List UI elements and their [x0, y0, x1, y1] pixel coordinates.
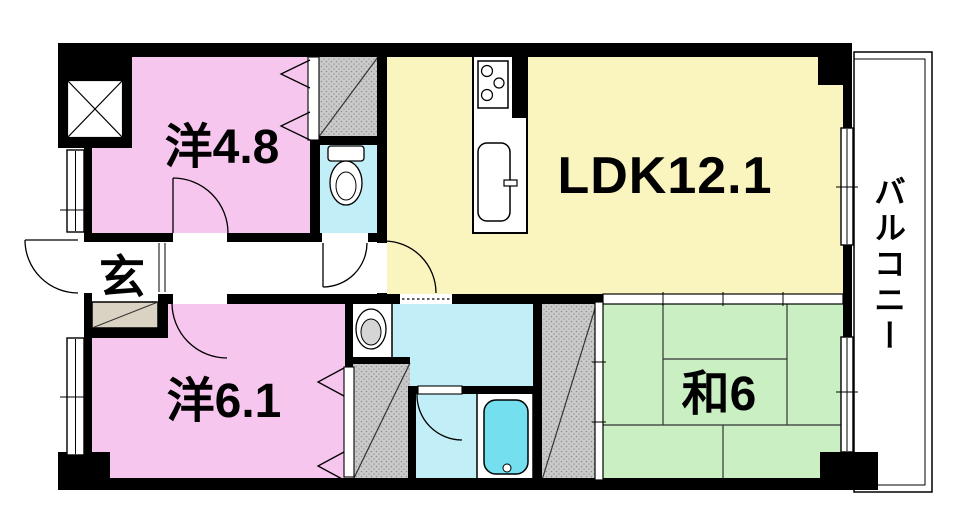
faucet-icon — [504, 180, 517, 186]
washbasin-bowl-icon — [361, 319, 381, 345]
wall-right — [843, 243, 852, 339]
pipe-shaft — [67, 80, 123, 138]
entrance-step-line — [159, 243, 165, 292]
pillar-top-right — [818, 43, 852, 85]
wall-entrance-bottom — [84, 328, 160, 338]
bathtub-drain-icon — [503, 464, 511, 472]
bathtub-icon — [484, 400, 528, 474]
wall-ldk-left — [377, 48, 387, 243]
label-entrance: 玄 — [99, 251, 145, 303]
toilet-tank-icon — [328, 146, 364, 161]
balcony-label: バルコニー — [870, 175, 906, 355]
label-western-4-8: 洋4.8 — [165, 121, 280, 174]
opening-toilet — [322, 233, 368, 242]
wall-left — [84, 293, 92, 478]
opening-ldk — [377, 243, 387, 293]
room-western-4-8-floor-ext — [92, 148, 132, 233]
opening-western-6-1 — [173, 294, 227, 304]
door-toilet — [323, 243, 367, 287]
wall-washbasin-bottom — [345, 357, 410, 364]
wall-bathroom-left — [408, 386, 416, 480]
entrance-door — [25, 240, 78, 293]
room-western-6-1-floor-ext — [162, 302, 345, 336]
balcony: バルコニー — [854, 52, 932, 492]
stove-burner — [494, 78, 504, 88]
wall-right — [843, 85, 852, 130]
sliding-door-ldk-japanese-6 — [603, 292, 843, 306]
toilet-seat-icon — [336, 172, 356, 200]
wall-toilet-left — [310, 140, 320, 233]
kitchen-wall-stub — [512, 48, 527, 118]
opening-western-4-8 — [173, 233, 227, 242]
floor-plan-drawing: バルコニー — [0, 0, 967, 525]
floor-plan-page: バルコニー — [0, 0, 967, 525]
wall-bottom — [58, 478, 878, 490]
wall-washroom-left — [345, 294, 353, 367]
wall-top — [58, 43, 852, 57]
wall-left — [84, 148, 92, 240]
label-western-6-1: 洋6.1 — [167, 375, 282, 428]
stove-burner — [482, 66, 493, 77]
label-japanese-6: 和6 — [682, 368, 757, 421]
wall-wet-right — [533, 294, 542, 480]
label-ldk: LDK12.1 — [557, 147, 772, 205]
wall-toilet-top — [310, 136, 378, 145]
stove-burner — [482, 90, 493, 101]
